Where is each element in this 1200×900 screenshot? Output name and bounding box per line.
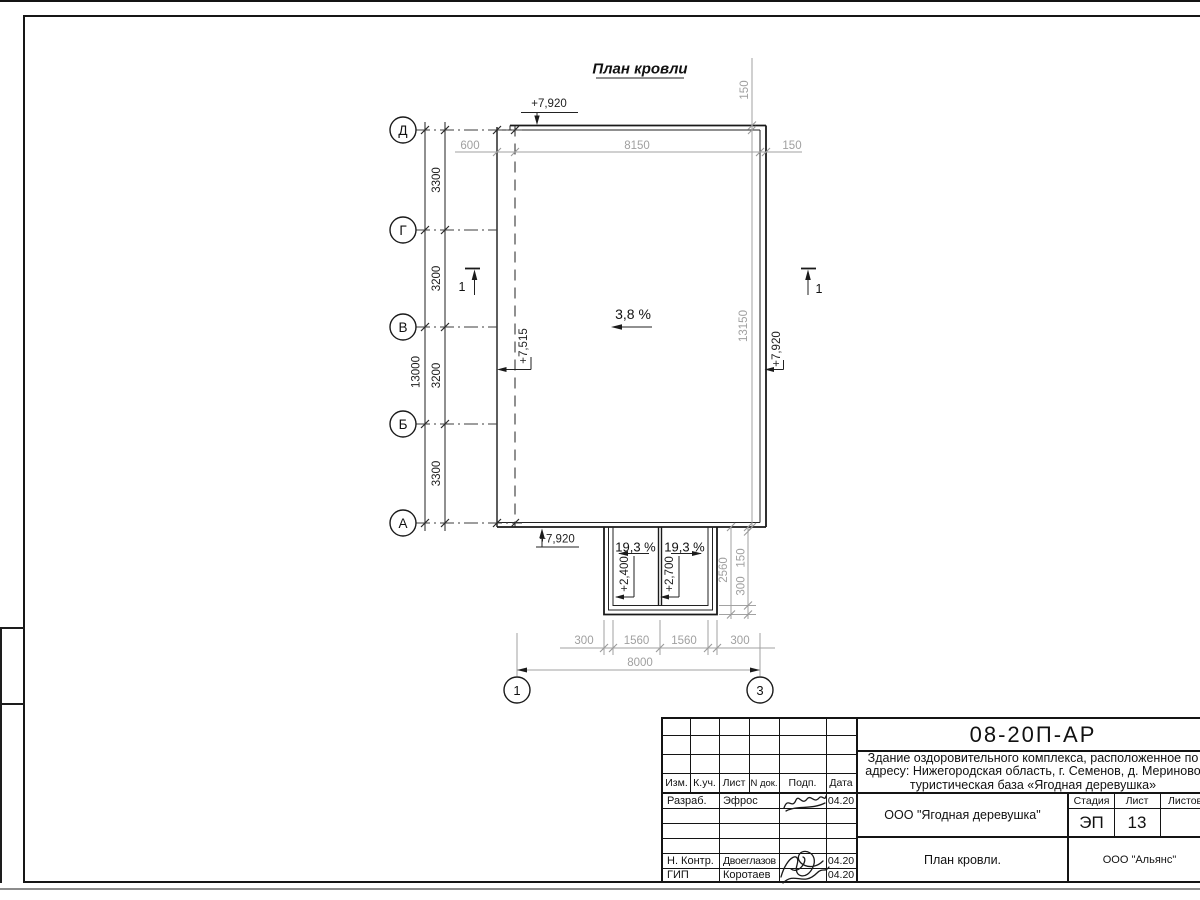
svg-text:+7,515: +7,515: [518, 328, 530, 364]
section-mark-right: 1: [801, 269, 823, 297]
tb-sheet-label: Лист: [1114, 793, 1160, 808]
dim-150-top: 150: [782, 140, 801, 152]
axis-label-3: 3: [756, 683, 763, 698]
dim-2560: 2560: [718, 557, 730, 583]
tb-sheet-number: 13: [1114, 809, 1160, 836]
axis-label-b: Б: [399, 417, 408, 432]
canopy-slope-left-label: 19,3 %: [615, 540, 656, 555]
svg-text:+7,920: +7,920: [539, 534, 575, 546]
svg-text:+2,400: +2,400: [619, 556, 631, 592]
svg-text:1: 1: [459, 280, 466, 294]
dim-13150: 13150: [738, 310, 750, 342]
section-mark-left: 1: [459, 269, 480, 296]
tb-client: ООО "Ягодная деревушка": [858, 794, 1067, 836]
elevation-right: +7,920: [765, 331, 784, 372]
tb-col-data: Дата: [826, 774, 856, 792]
bottom-dim-chain: 300 1560 1560 300: [560, 620, 775, 655]
tb-sheets-label: Листов: [1160, 793, 1200, 808]
axis-label-v: В: [398, 320, 407, 335]
tb-name-dvoeglazov: Двоеглазов: [719, 854, 779, 868]
axis-bubbles-bottom: 1 3: [504, 677, 773, 703]
tb-date-razrab: 04.20: [826, 793, 856, 808]
tb-col-izm: Изм.: [663, 774, 690, 792]
axis-label-g: Г: [399, 223, 407, 238]
dim-300-left: 300: [574, 635, 593, 647]
dim-1560-right: 1560: [671, 635, 697, 647]
tb-stage-label: Стадия: [1069, 793, 1114, 808]
dim-1560-left: 1560: [624, 635, 650, 647]
elevation-left: +7,515: [497, 328, 531, 372]
tb-sheet-title: План кровли.: [858, 838, 1067, 881]
tb-org: ООО "Альянс": [1069, 838, 1200, 881]
canopy-elevation-left: +2,400: [615, 556, 634, 600]
axis-bubbles-left: Д Г В Б А: [390, 117, 416, 536]
tb-project-line2: адресу: Нижегородская область, г. Семено…: [865, 765, 1200, 779]
dim-8000: 8000: [627, 657, 653, 669]
canopy-right-dims: 2560 150 300: [718, 523, 756, 619]
canopy-elevation-right: +2,700: [660, 556, 679, 600]
signature-gip: [773, 845, 831, 891]
tb-role-nkontr: Н. Контр.: [663, 854, 719, 868]
canopy-slope-right-label: 19,3 %: [664, 540, 705, 555]
svg-text:+7,920: +7,920: [771, 331, 783, 367]
tb-col-ndok: N док.: [749, 774, 779, 792]
roof-outline: [497, 126, 766, 528]
tb-col-podp: Подп.: [779, 774, 826, 792]
tb-project-description: Здание оздоровительного комплекса, распо…: [856, 752, 1200, 792]
tb-project-line1: Здание оздоровительного комплекса, распо…: [868, 752, 1199, 766]
tb-doc-number: 08-20П-АР: [856, 719, 1200, 750]
dim-300-canopy: 300: [736, 576, 748, 595]
title-block: Изм. К.уч. Лист N док. Подп. Дата Разраб…: [661, 717, 1200, 883]
drawing-sheet: { "drawing": { "heading": "План кровли",…: [0, 0, 1200, 900]
dim-150-canopy: 150: [736, 548, 748, 567]
dim-8150: 8150: [624, 140, 650, 152]
tb-project-line3: туристическая база «Ягодная деревушка»: [910, 779, 1156, 793]
dim-3300-top: 3300: [431, 167, 443, 193]
dim-3300-bottom: 3300: [431, 461, 443, 487]
dim-600: 600: [460, 140, 479, 152]
tb-stage-value: ЭП: [1069, 809, 1114, 836]
axis-label-1: 1: [513, 683, 520, 698]
svg-text:+2,700: +2,700: [664, 556, 676, 592]
dim-3200-upper: 3200: [431, 266, 443, 292]
axis-label-a: А: [398, 516, 407, 531]
svg-text:1: 1: [816, 282, 823, 296]
dim-150-vert: 150: [739, 80, 751, 99]
elevation-top: +7,920: [521, 98, 578, 125]
signature-razrab: [781, 792, 827, 814]
dim-3200-lower: 3200: [431, 363, 443, 389]
elevation-bottom: +7,920: [536, 529, 579, 548]
dim-300-right: 300: [730, 635, 749, 647]
dim-13000: 13000: [411, 356, 423, 388]
top-dim-chain: 600 8150 150: [455, 140, 802, 156]
axis-label-d: Д: [398, 123, 407, 138]
tb-role-gip: ГИП: [663, 869, 719, 881]
drawing-heading: План кровли: [592, 61, 687, 78]
tb-col-list: Лист: [719, 774, 749, 792]
tb-name-efros: Эфрос: [719, 793, 779, 808]
svg-text:+7,920: +7,920: [531, 98, 567, 110]
main-slope-label: 3,8 %: [615, 306, 651, 322]
tb-role-razrab: Разраб.: [663, 793, 719, 808]
tb-name-korotaev: Коротаев: [719, 869, 779, 881]
main-slope-arrow: [611, 324, 652, 330]
right-dim-chain: 150 13150: [738, 58, 756, 531]
tb-col-kuch: К.уч.: [690, 774, 719, 792]
